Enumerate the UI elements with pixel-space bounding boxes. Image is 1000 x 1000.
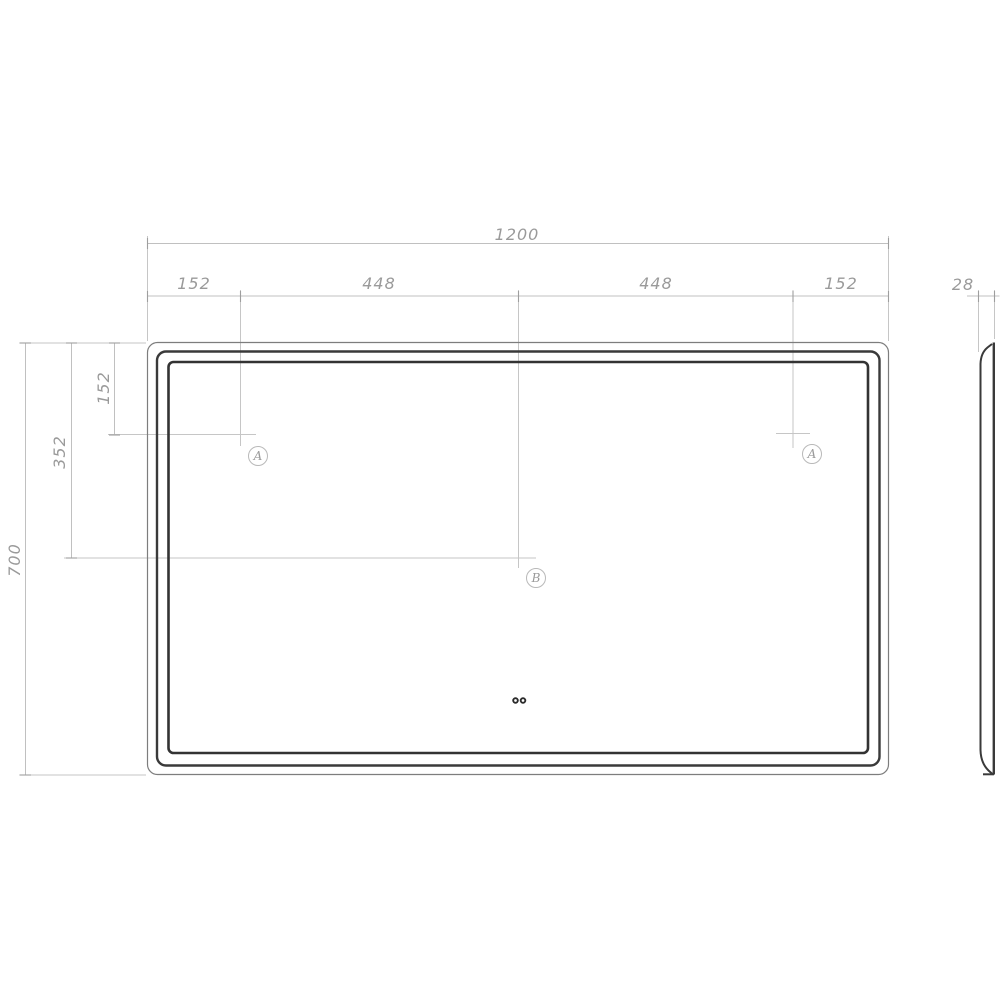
dim-offset-center-label: 352 (52, 435, 68, 469)
side-view (981, 343, 995, 775)
dim-total-height-label: 700 (7, 543, 23, 577)
side-view-back-edge (981, 344, 994, 775)
point-a-left-label: A (254, 450, 263, 462)
dim-segment-left-outer-label: 152 (177, 276, 211, 292)
point-badge-b-center: B (526, 568, 546, 588)
dim-segment-right-inner-label: 448 (639, 276, 673, 292)
drawing-linework (0, 0, 1000, 1000)
extension-lines (19, 236, 995, 775)
dimension-lines (26, 244, 1000, 776)
point-badge-a-left: A (248, 446, 268, 466)
dimension-ticks (20, 238, 995, 775)
point-a-right-label: A (808, 448, 817, 460)
dim-depth-label: 28 (952, 277, 974, 293)
sensor-dot-right (521, 698, 526, 703)
dim-segment-right-outer-label: 152 (824, 276, 858, 292)
dim-segment-left-inner-label: 448 (362, 276, 396, 292)
technical-drawing-canvas: 1200 152 448 448 152 28 152 352 700 A B … (0, 0, 1000, 1000)
point-b-label: B (532, 572, 541, 584)
point-badge-a-right: A (802, 444, 822, 464)
dim-offset-top-label: 152 (96, 371, 112, 405)
dim-total-width-label: 1200 (495, 227, 540, 243)
sensor-dot-left (513, 698, 518, 703)
